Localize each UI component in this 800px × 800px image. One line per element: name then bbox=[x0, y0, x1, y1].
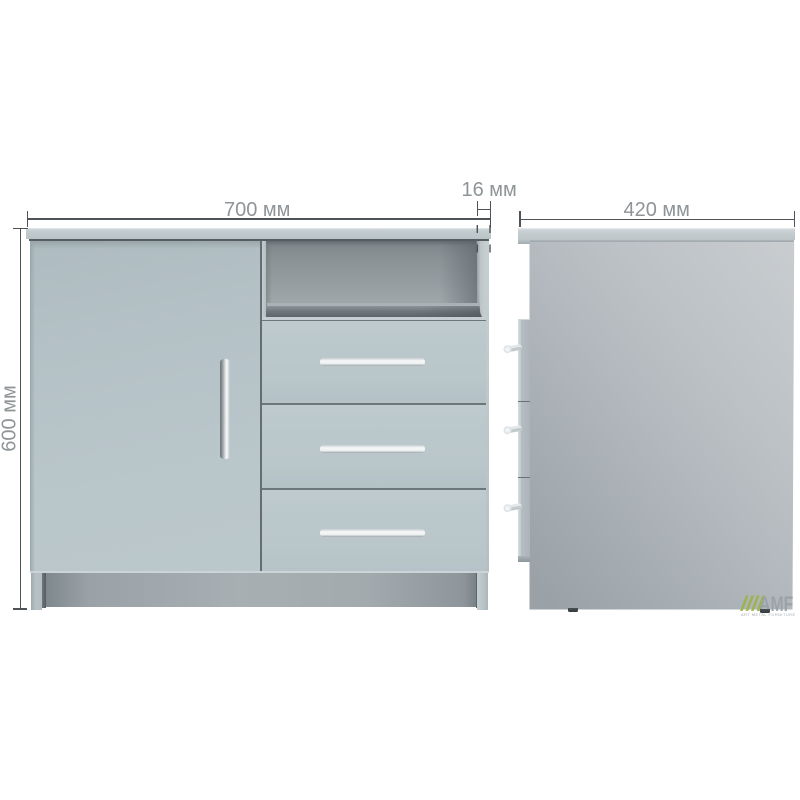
svg-text:ART METAL FURNITURE: ART METAL FURNITURE bbox=[741, 612, 796, 617]
